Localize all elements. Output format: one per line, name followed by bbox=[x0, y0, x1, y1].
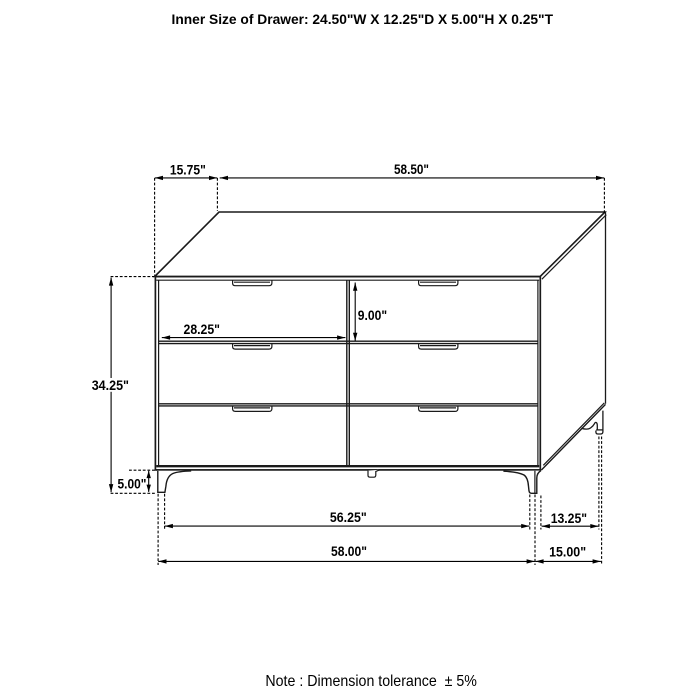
svg-text:Note : Dimension tolerance ±: Note : Dimension tolerance ± 5% bbox=[265, 673, 477, 690]
svg-text:15.75": 15.75" bbox=[170, 162, 206, 177]
svg-text:13.25": 13.25" bbox=[551, 511, 587, 526]
svg-text:58.50": 58.50" bbox=[394, 162, 429, 177]
svg-text:28.25": 28.25" bbox=[184, 322, 221, 337]
svg-text:9.00": 9.00" bbox=[358, 308, 387, 323]
svg-text:56.25": 56.25" bbox=[330, 510, 367, 525]
svg-text:Inner Size of Drawer: 24.50"W: Inner Size of Drawer: 24.50"W X 12.25"D … bbox=[172, 11, 554, 27]
svg-text:58.00": 58.00" bbox=[331, 544, 367, 559]
svg-text:34.25": 34.25" bbox=[92, 378, 129, 393]
svg-text:5.00": 5.00" bbox=[118, 477, 147, 492]
svg-text:15.00": 15.00" bbox=[549, 544, 586, 559]
